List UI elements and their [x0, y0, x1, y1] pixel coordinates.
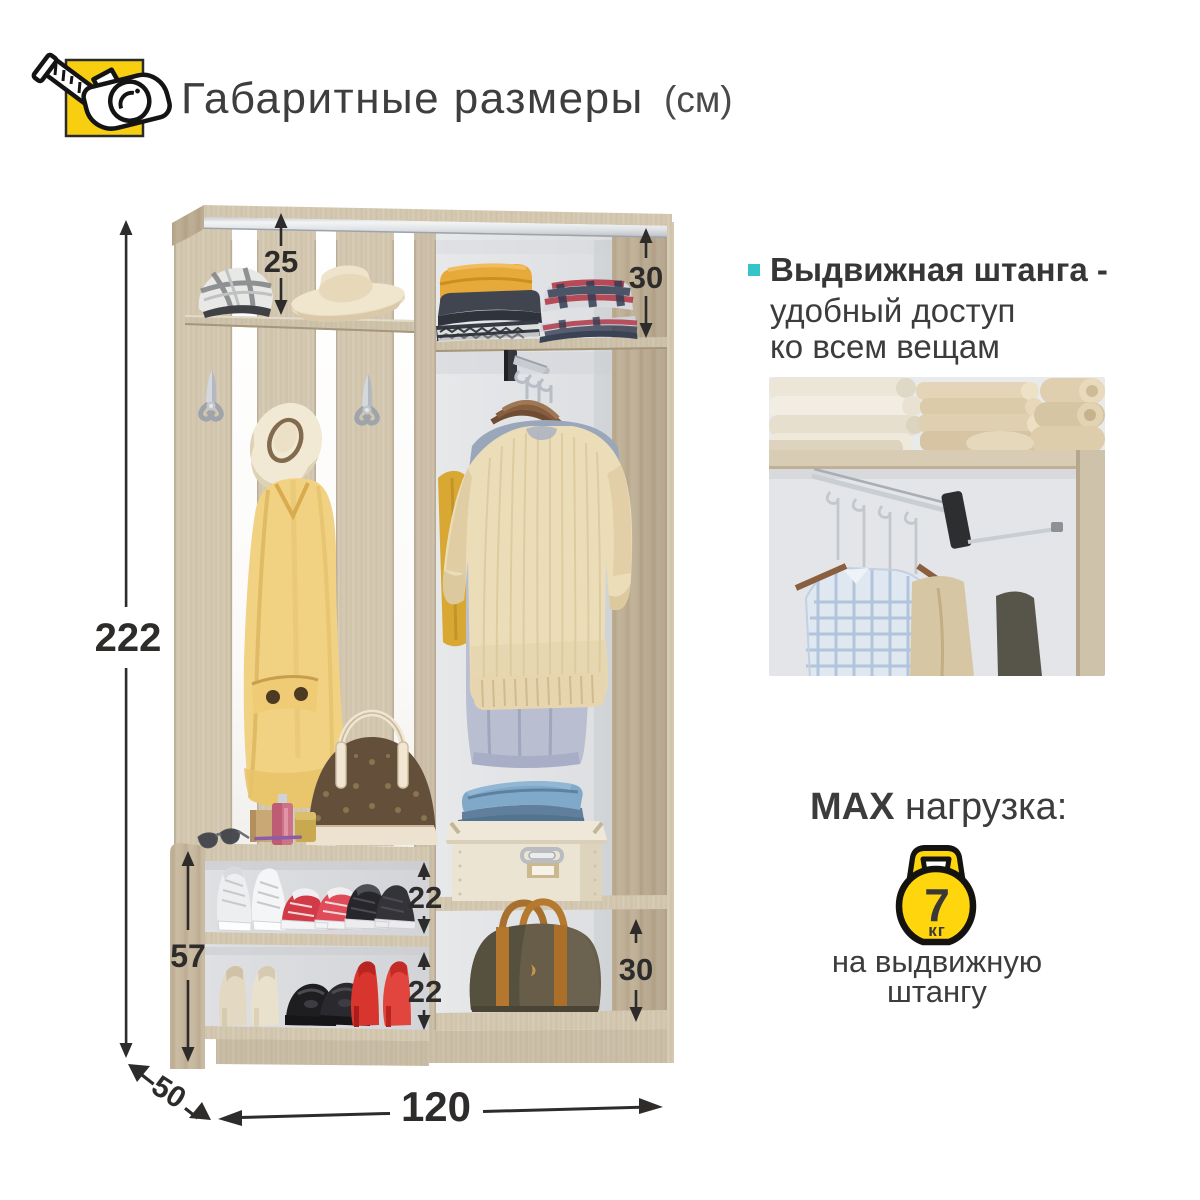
- svg-text:222: 222: [95, 616, 162, 660]
- svg-text:30: 30: [629, 260, 663, 295]
- svg-text:(см): (см): [664, 79, 733, 120]
- svg-text:22: 22: [408, 880, 442, 915]
- svg-text:MAX нагрузка:: MAX нагрузка:: [810, 786, 1067, 828]
- svg-text:ко всем вещам: ко всем вещам: [770, 328, 1000, 365]
- svg-text:удобный доступ: удобный доступ: [770, 292, 1015, 329]
- svg-text:22: 22: [408, 974, 442, 1009]
- svg-text:штангу: штангу: [887, 974, 987, 1009]
- svg-text:30: 30: [619, 952, 653, 987]
- svg-text:кг: кг: [928, 921, 946, 940]
- svg-text:Габаритные размеры: Габаритные размеры: [181, 74, 644, 123]
- svg-text:57: 57: [170, 938, 206, 974]
- svg-text:25: 25: [264, 244, 298, 279]
- svg-text:Выдвижная штанга -: Выдвижная штанга -: [770, 251, 1108, 288]
- svg-text:120: 120: [401, 1083, 471, 1130]
